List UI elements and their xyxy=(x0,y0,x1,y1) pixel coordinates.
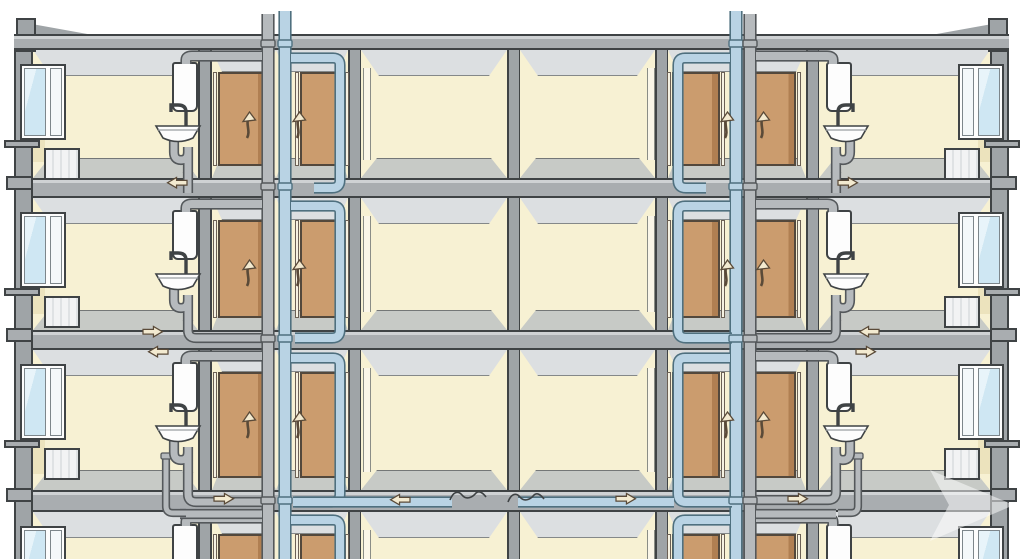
heater-flue-pipe xyxy=(186,356,262,364)
water-branch-pipe-outline xyxy=(678,520,730,559)
pipe-break-squiggle xyxy=(450,492,486,500)
pipe-coupling xyxy=(278,335,292,342)
sink-drain-pipe xyxy=(756,320,836,338)
flow-arrow xyxy=(149,346,168,356)
airflow-up-arrow xyxy=(757,260,770,286)
faucet-icon xyxy=(171,253,186,274)
water-branch-pipe xyxy=(678,520,730,559)
wash-basin xyxy=(156,126,200,142)
heater-flue-pipe xyxy=(756,56,833,64)
heater-flue-pipe xyxy=(186,204,262,212)
pipe-coupling xyxy=(729,183,743,190)
water-branch-pipe xyxy=(291,520,340,559)
pipe-coupling xyxy=(743,497,757,504)
pipe-coupling xyxy=(278,183,292,190)
heater-flue-pipe xyxy=(186,518,262,526)
water-branch-pipe-outline xyxy=(291,520,340,559)
flow-arrow xyxy=(143,326,162,336)
pipe-coupling xyxy=(278,40,292,47)
airflow-up-arrow xyxy=(243,112,256,138)
flow-arrow xyxy=(860,326,879,336)
pipe-coupling xyxy=(743,183,757,190)
wash-basin xyxy=(824,274,868,290)
pipe-coupling xyxy=(261,183,275,190)
pipe-coupling xyxy=(261,497,275,504)
airflow-up-arrow xyxy=(293,112,306,138)
airflow-up-arrow xyxy=(243,412,256,438)
water-branch-pipe-outline xyxy=(678,206,732,338)
airflow-up-arrow xyxy=(757,412,770,438)
heater-flue-pipe xyxy=(756,356,833,364)
heater-flue-pipe xyxy=(756,518,833,526)
sink-drain-pipe xyxy=(188,320,262,338)
faucet-icon xyxy=(171,105,186,126)
water-branch-pipe-outline xyxy=(678,358,732,502)
pipes-svg xyxy=(0,0,1024,559)
faucet-icon xyxy=(838,405,853,426)
heater-flue-pipe xyxy=(756,204,833,212)
faucet-icon xyxy=(838,105,853,126)
airflow-up-arrow xyxy=(293,412,306,438)
water-branch-pipe xyxy=(678,206,732,338)
pipe-coupling xyxy=(278,497,292,504)
pipe-coupling xyxy=(743,40,757,47)
wash-basin xyxy=(156,426,200,442)
airflow-up-arrow xyxy=(757,112,770,138)
flow-arrow xyxy=(856,346,875,356)
pipe-coupling xyxy=(729,497,743,504)
faucet-icon xyxy=(838,253,853,274)
water-branch-pipe xyxy=(678,58,730,188)
wash-basin xyxy=(156,274,200,290)
pipe-coupling xyxy=(261,335,275,342)
pipe-coupling xyxy=(729,335,743,342)
heater-flue-pipe xyxy=(186,56,262,64)
pipes-overlay xyxy=(0,0,1024,559)
faucet-icon xyxy=(171,405,186,426)
wash-basin xyxy=(824,426,868,442)
pipe-coupling xyxy=(743,335,757,342)
watermark-arrow xyxy=(930,470,1014,541)
wash-basin xyxy=(824,126,868,142)
building-cross-section xyxy=(0,0,1024,559)
pipe-coupling xyxy=(729,40,743,47)
water-branch-pipe xyxy=(678,358,732,502)
pipe-coupling xyxy=(261,40,275,47)
airflow-up-arrow xyxy=(293,260,306,286)
water-branch-pipe-outline xyxy=(678,58,730,188)
airflow-up-arrow xyxy=(243,260,256,286)
